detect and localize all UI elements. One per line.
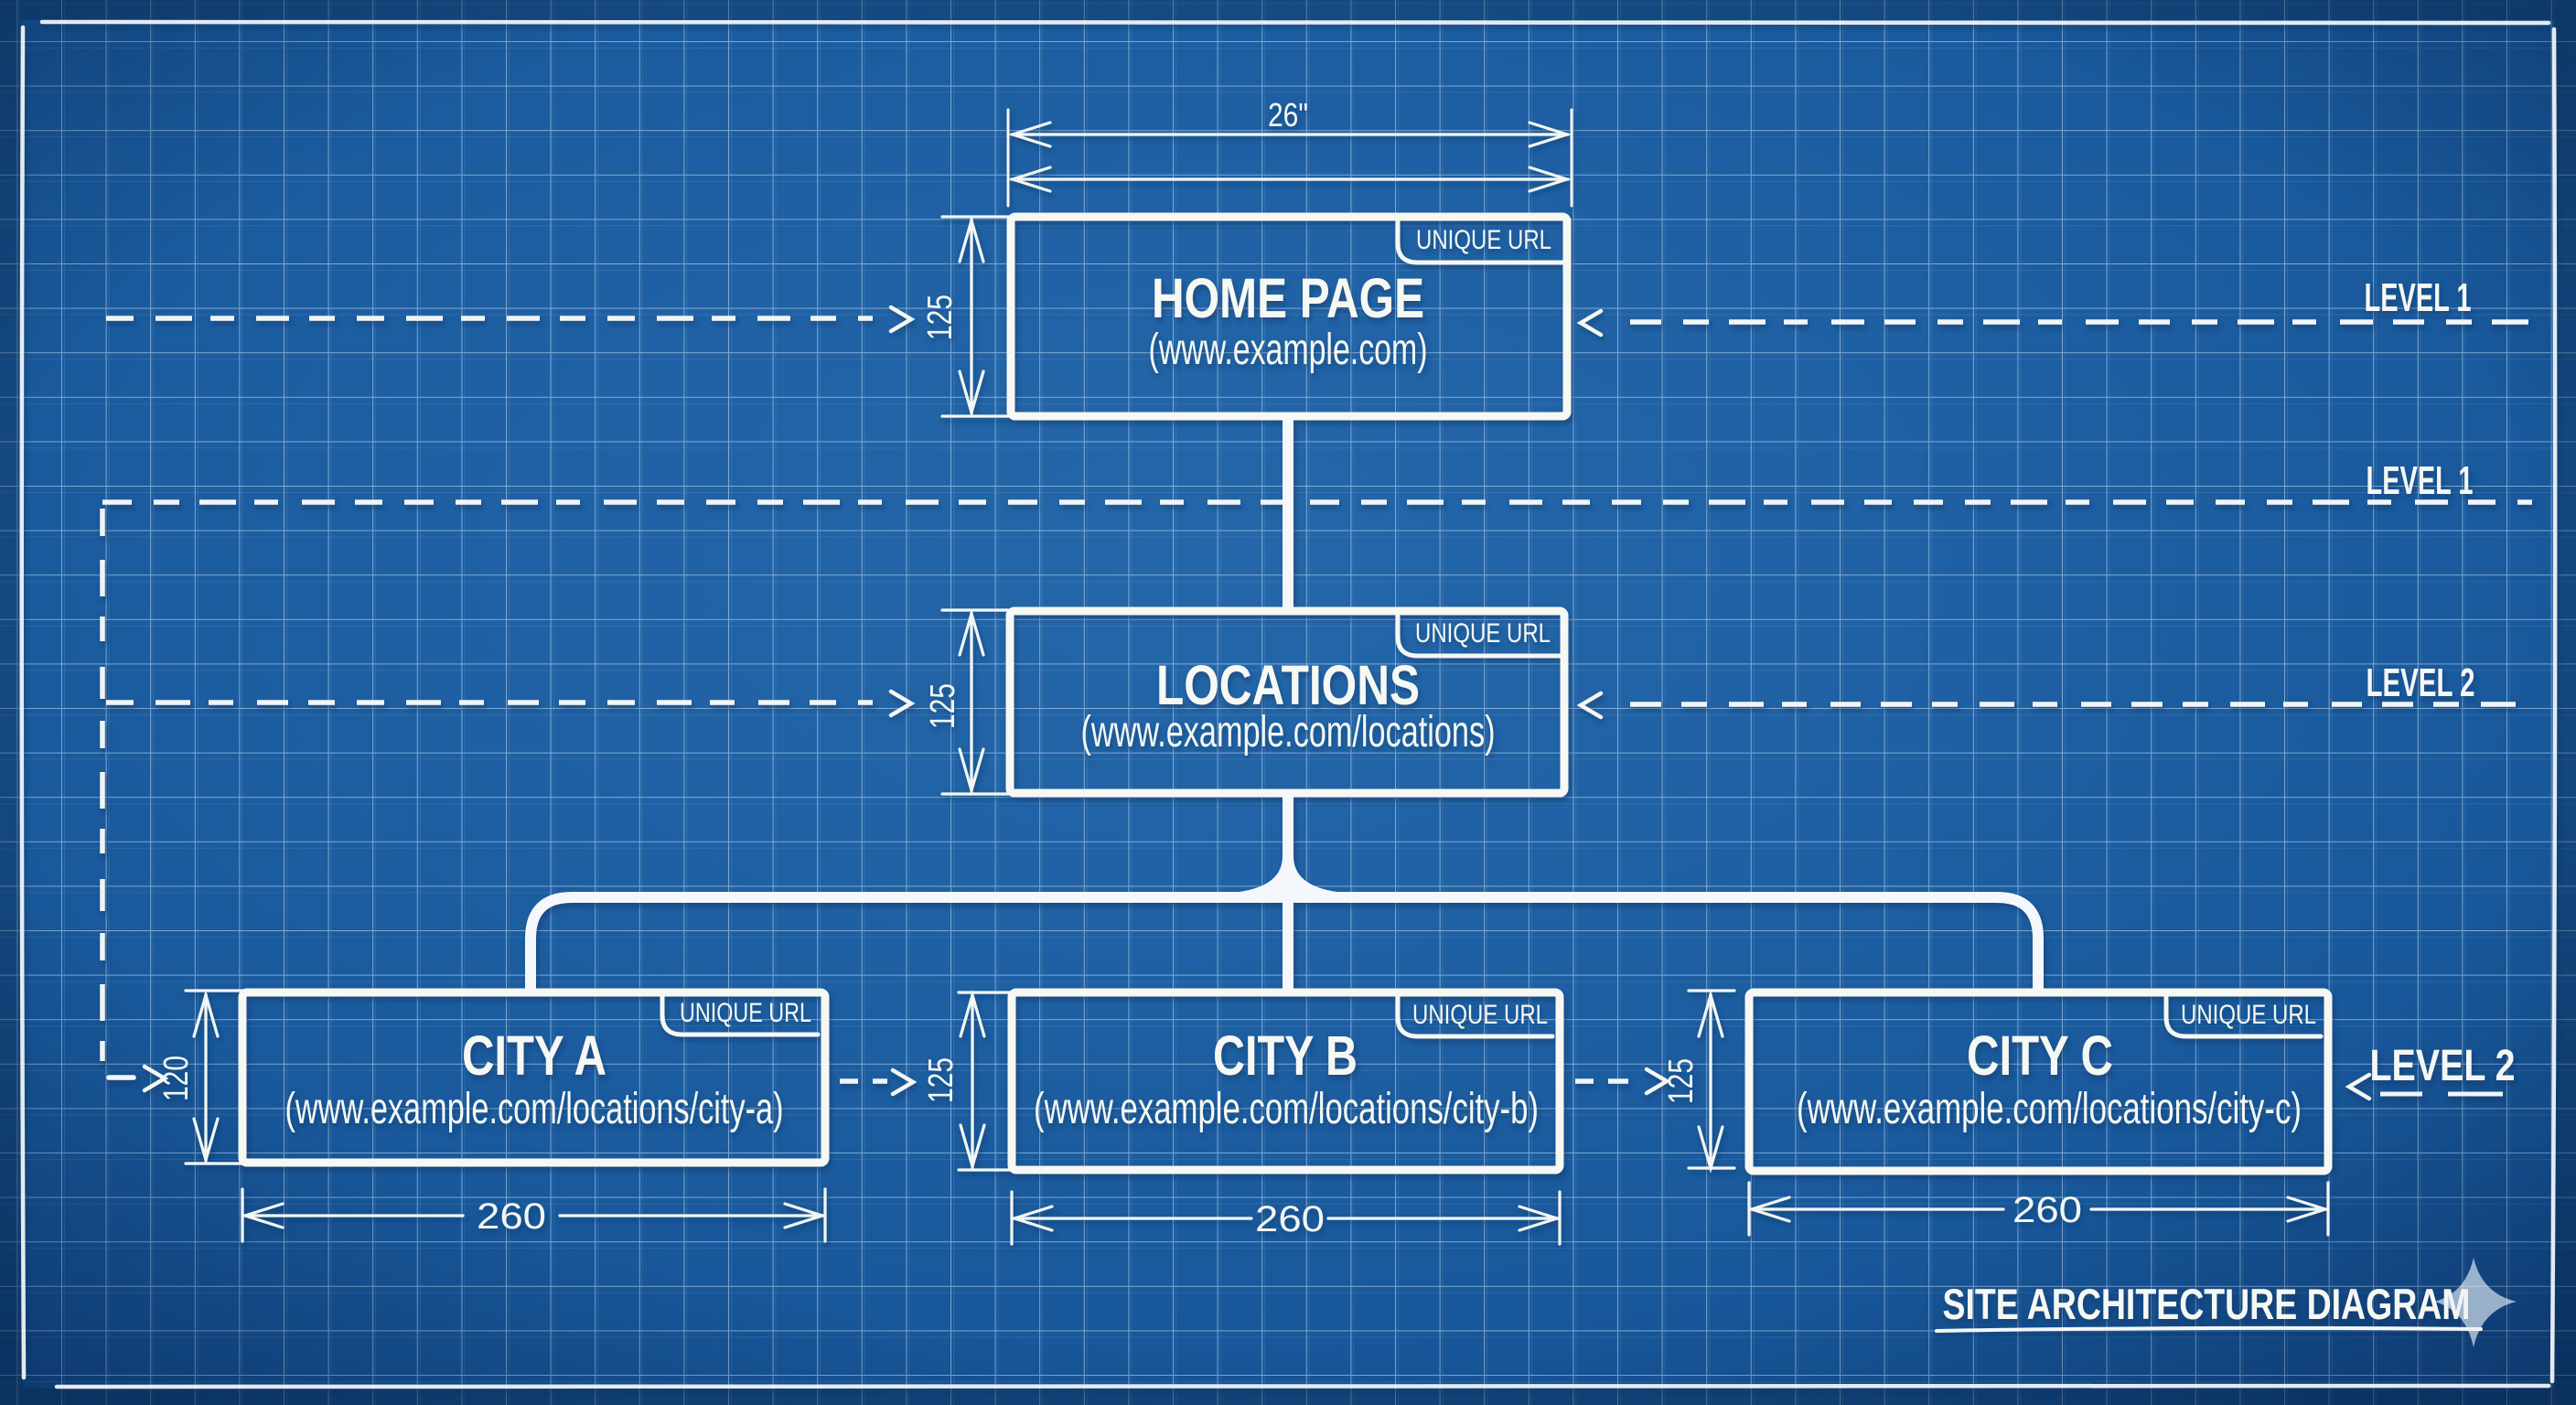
svg-text:CITY C: CITY C: [1967, 1024, 2113, 1087]
svg-text:260: 260: [1255, 1199, 1325, 1239]
svg-text:260: 260: [477, 1196, 546, 1237]
svg-text:UNIQUE URL: UNIQUE URL: [1416, 225, 1551, 255]
svg-text:LEVEL 2: LEVEL 2: [2370, 1042, 2516, 1090]
svg-text:UNIQUE URL: UNIQUE URL: [680, 998, 811, 1028]
svg-text:LEVEL 1: LEVEL 1: [2367, 458, 2474, 503]
svg-text:125: 125: [921, 295, 960, 340]
svg-text:LEVEL 2: LEVEL 2: [2367, 660, 2475, 705]
svg-text:125: 125: [922, 1057, 961, 1103]
svg-text:UNIQUE URL: UNIQUE URL: [1412, 1000, 1548, 1030]
svg-text:260: 260: [2012, 1190, 2082, 1230]
svg-text:(www.example.com/locations/cit: (www.example.com/locations/city-a): [285, 1085, 784, 1133]
svg-text:CITY A: CITY A: [462, 1024, 606, 1087]
svg-text:125: 125: [924, 683, 962, 729]
svg-text:125: 125: [1662, 1058, 1701, 1104]
svg-text:LEVEL 1: LEVEL 1: [2365, 275, 2472, 320]
svg-text:HOME PAGE: HOME PAGE: [1152, 267, 1424, 329]
svg-text:UNIQUE URL: UNIQUE URL: [2181, 1000, 2316, 1030]
svg-text:120: 120: [157, 1056, 196, 1101]
svg-text:(www.example.com/locations/cit: (www.example.com/locations/city-c): [1797, 1085, 2302, 1133]
svg-text:UNIQUE URL: UNIQUE URL: [1415, 618, 1551, 649]
svg-text:26": 26": [1268, 96, 1308, 134]
svg-text:(www.example.com/locations/cit: (www.example.com/locations/city-b): [1034, 1085, 1539, 1133]
svg-text:(www.example.com): (www.example.com): [1149, 326, 1428, 374]
svg-text:LOCATIONS: LOCATIONS: [1156, 654, 1420, 716]
svg-text:CITY B: CITY B: [1213, 1024, 1358, 1087]
svg-text:(www.example.com/locations): (www.example.com/locations): [1081, 708, 1496, 756]
svg-text:SITE ARCHITECTURE DIAGRAM: SITE ARCHITECTURE DIAGRAM: [1943, 1280, 2471, 1328]
